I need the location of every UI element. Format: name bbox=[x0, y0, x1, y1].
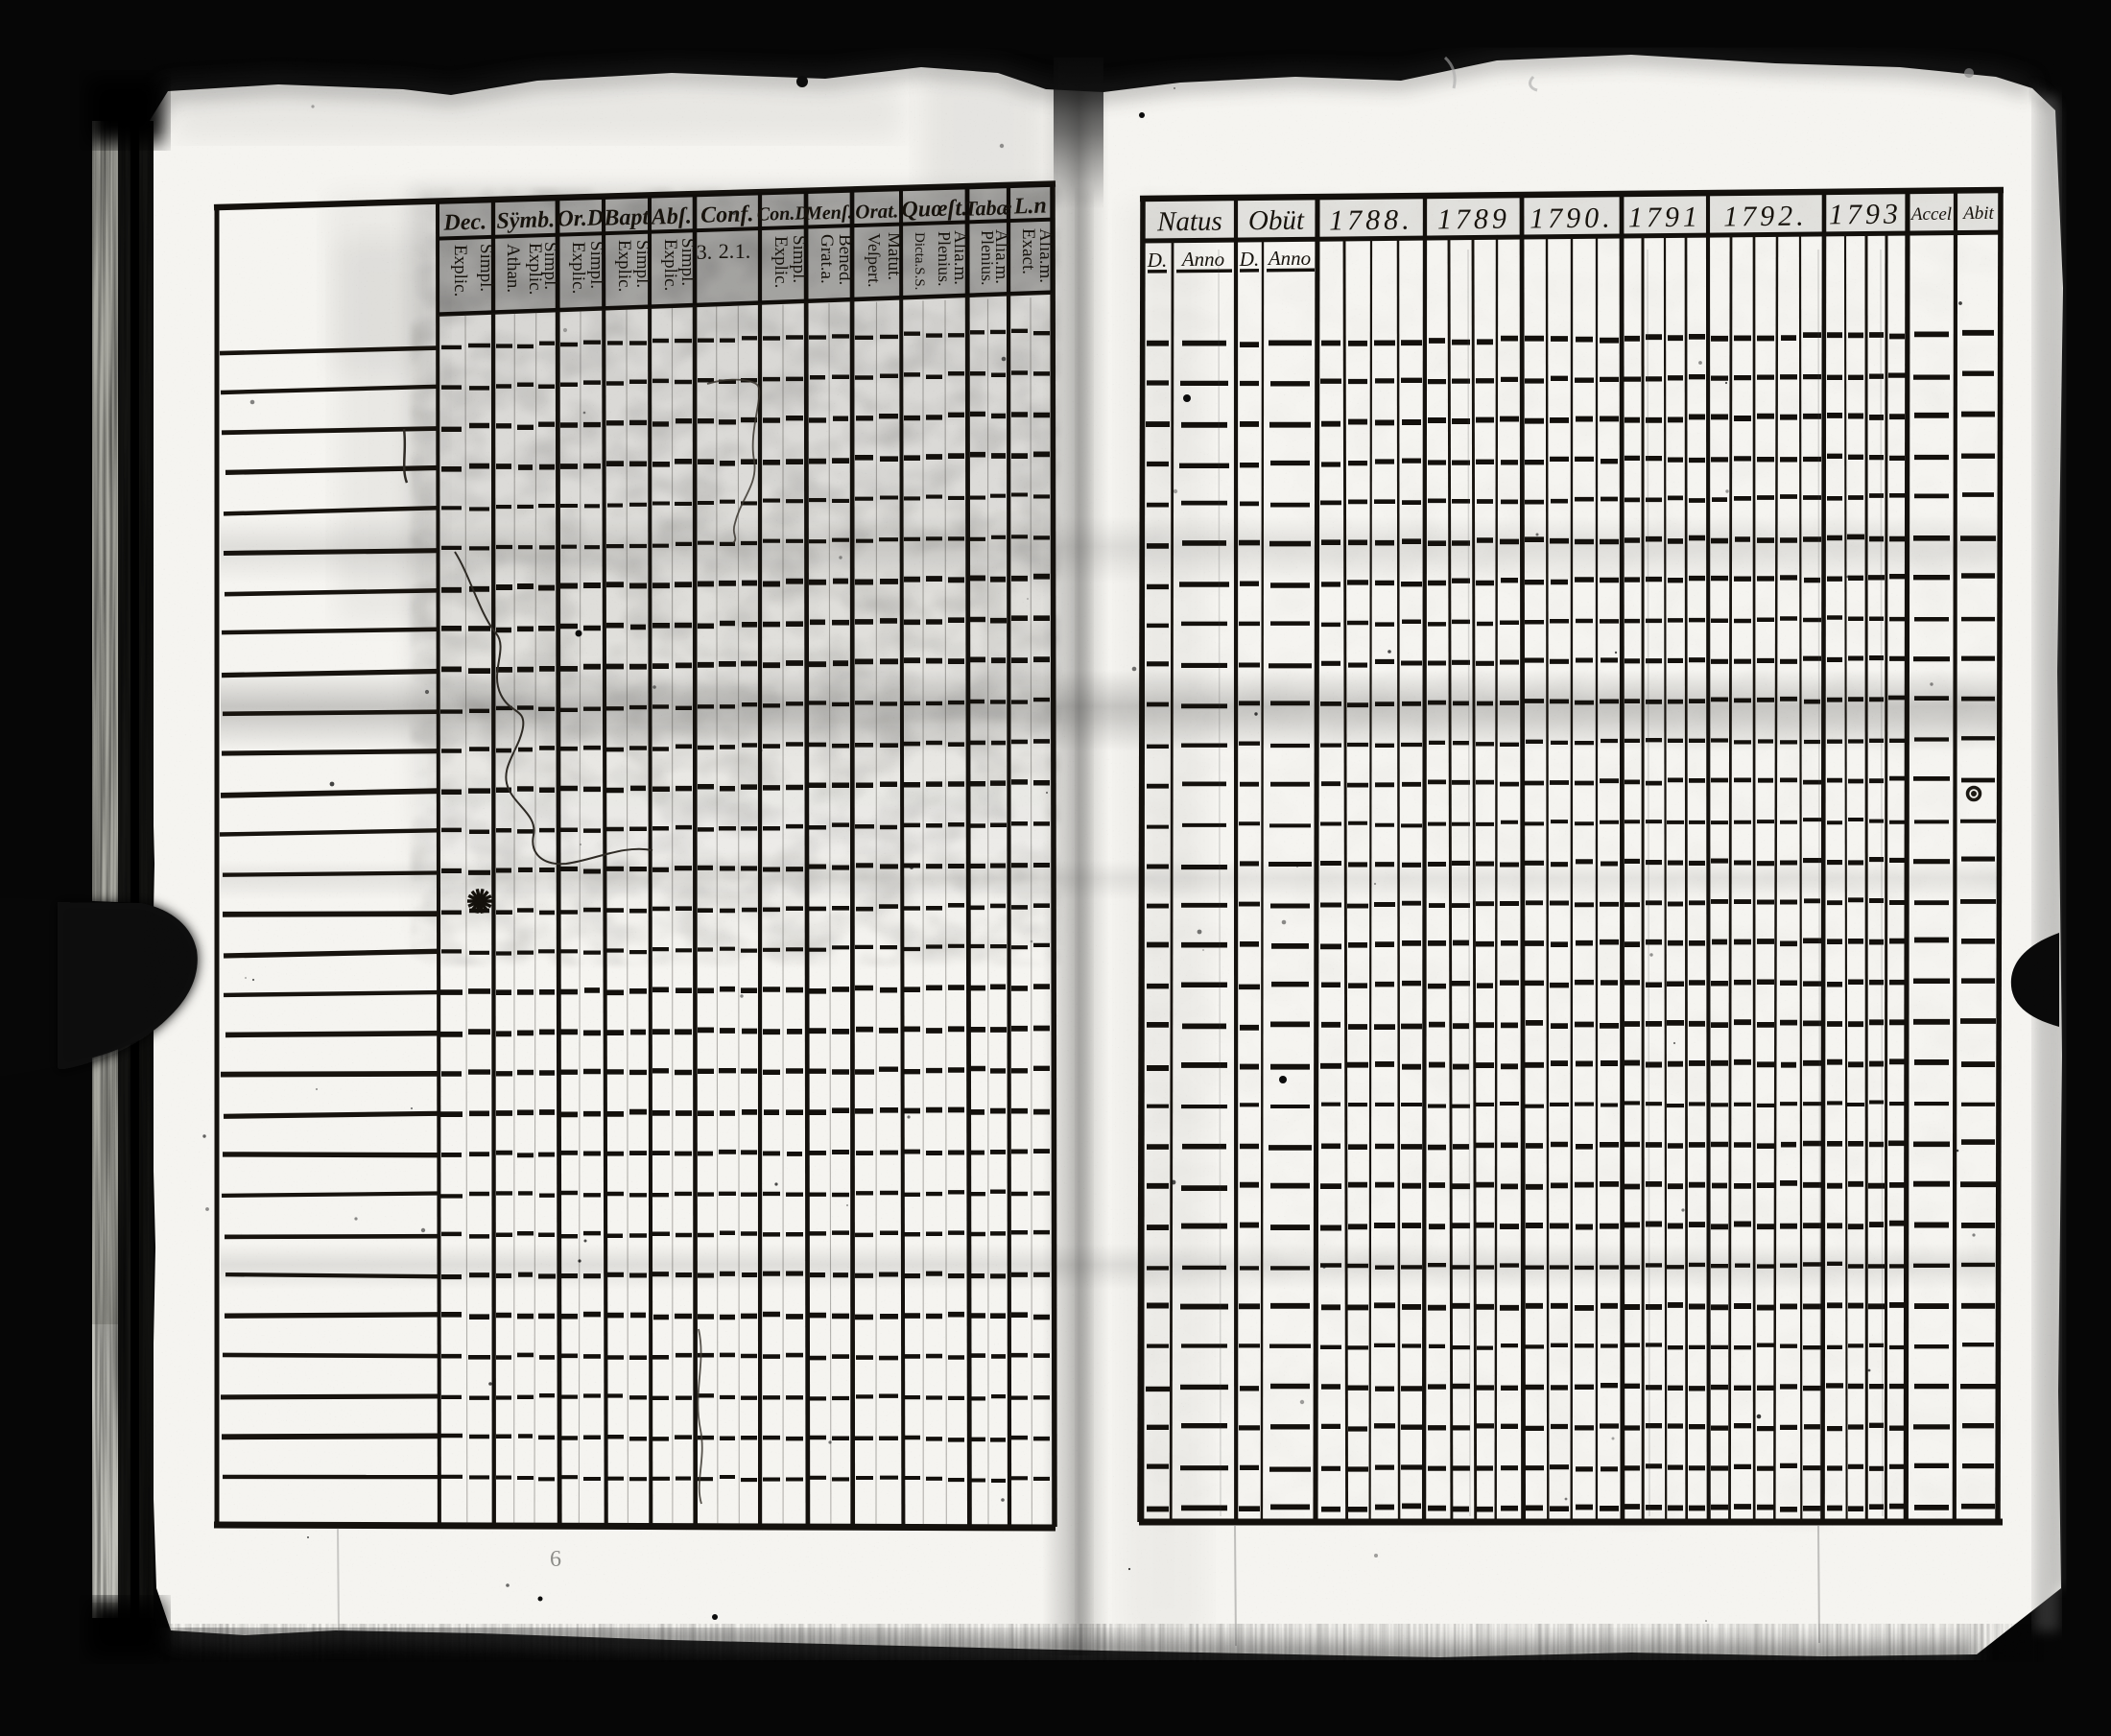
svg-text:1790.: 1790. bbox=[1530, 202, 1614, 235]
svg-text:Orat.: Orat. bbox=[855, 199, 899, 223]
svg-text:1.: 1. bbox=[735, 239, 751, 263]
svg-text:Explic.: Explic. bbox=[614, 240, 634, 292]
svg-text:Simpl.: Simpl. bbox=[789, 235, 809, 283]
svg-text:Alia.m.: Alia.m. bbox=[950, 230, 970, 285]
svg-text:D.: D. bbox=[1239, 248, 1259, 271]
svg-text:Dicta.S.S.: Dicta.S.S. bbox=[912, 232, 927, 290]
svg-text:Matut.: Matut. bbox=[884, 232, 904, 280]
svg-text:1793: 1793 bbox=[1829, 199, 1902, 231]
svg-text:Tabæ: Tabæ bbox=[964, 195, 1012, 220]
svg-text:Simpl.: Simpl. bbox=[632, 240, 652, 288]
svg-text:Anno: Anno bbox=[1180, 248, 1224, 271]
svg-text:Simpl.: Simpl. bbox=[586, 241, 606, 289]
svg-text:Obüt: Obüt bbox=[1248, 205, 1305, 237]
svg-text:Natus: Natus bbox=[1156, 206, 1222, 238]
svg-text:Simpl.: Simpl. bbox=[677, 238, 698, 286]
svg-text:Explic.: Explic. bbox=[660, 239, 680, 291]
svg-text:Dec.: Dec. bbox=[442, 209, 486, 235]
svg-text:Bapt: Bapt bbox=[603, 204, 651, 230]
svg-text:Alia.m.: Alia.m. bbox=[991, 229, 1011, 284]
svg-text:Anno: Anno bbox=[1267, 247, 1311, 270]
svg-text:L.n: L.n bbox=[1012, 194, 1047, 220]
svg-text:Abit: Abit bbox=[1961, 203, 1994, 224]
svg-text:1791: 1791 bbox=[1628, 202, 1701, 234]
svg-text:D.: D. bbox=[1147, 249, 1167, 272]
svg-text:6: 6 bbox=[550, 1547, 561, 1572]
svg-text:Accel: Accel bbox=[1909, 204, 1952, 225]
svg-text:Bened.: Bened. bbox=[835, 234, 855, 285]
svg-text:Simpl.: Simpl. bbox=[476, 244, 496, 292]
svg-text:Explic.: Explic. bbox=[568, 242, 588, 294]
svg-text:Alia.m.: Alia.m. bbox=[1035, 228, 1055, 283]
svg-text:Simpl.: Simpl. bbox=[540, 242, 560, 290]
svg-text:Grat.a.: Grat.a. bbox=[817, 234, 837, 284]
svg-text:1792.: 1792. bbox=[1723, 201, 1808, 233]
svg-text:Athan.: Athan. bbox=[503, 244, 523, 293]
svg-text:Veſpert.: Veſpert. bbox=[865, 233, 884, 287]
svg-text:2.: 2. bbox=[719, 239, 735, 263]
svg-text:3.: 3. bbox=[697, 240, 713, 264]
svg-text:1789: 1789 bbox=[1437, 203, 1510, 236]
svg-text:Con.D: Con.D bbox=[757, 202, 809, 225]
svg-text:Or.D: Or.D bbox=[557, 205, 604, 231]
svg-text:Exact.: Exact. bbox=[1018, 228, 1038, 274]
svg-text:Explic.: Explic. bbox=[771, 236, 791, 288]
svg-text:Conf.: Conf. bbox=[700, 202, 754, 228]
svg-text:Menſ.: Menſ. bbox=[804, 202, 853, 224]
svg-text:Abſ.: Abſ. bbox=[649, 203, 692, 229]
svg-text:Sÿmb.: Sÿmb. bbox=[496, 207, 555, 234]
svg-text:Explic.: Explic. bbox=[450, 245, 470, 297]
svg-text:Quœſt.: Quœſt. bbox=[901, 196, 967, 223]
svg-text:1788.: 1788. bbox=[1329, 204, 1413, 237]
